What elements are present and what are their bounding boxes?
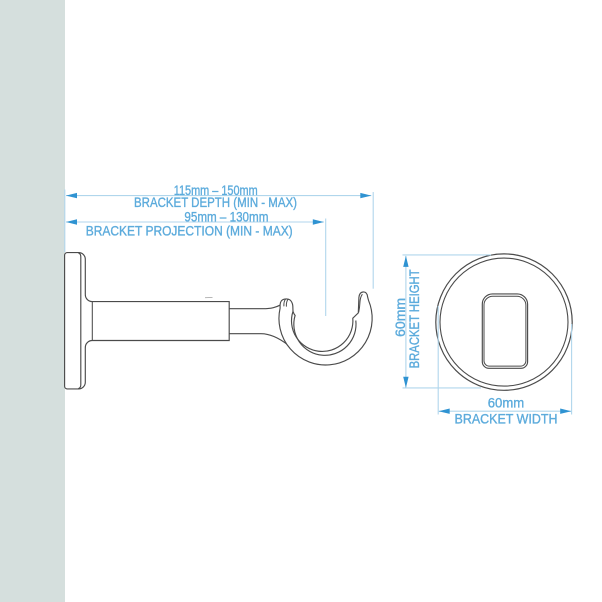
svg-text:BRACKET WIDTH: BRACKET WIDTH <box>455 411 558 426</box>
svg-text:60mm: 60mm <box>393 298 408 337</box>
svg-text:BRACKET PROJECTION (MIN - MAX): BRACKET PROJECTION (MIN - MAX) <box>86 223 293 238</box>
svg-text:60mm: 60mm <box>488 395 525 410</box>
svg-text:BRACKET DEPTH (MIN - MAX): BRACKET DEPTH (MIN - MAX) <box>134 195 297 210</box>
svg-text:BRACKET HEIGHT: BRACKET HEIGHT <box>407 269 422 368</box>
svg-text:95mm – 130mm: 95mm – 130mm <box>184 209 268 224</box>
